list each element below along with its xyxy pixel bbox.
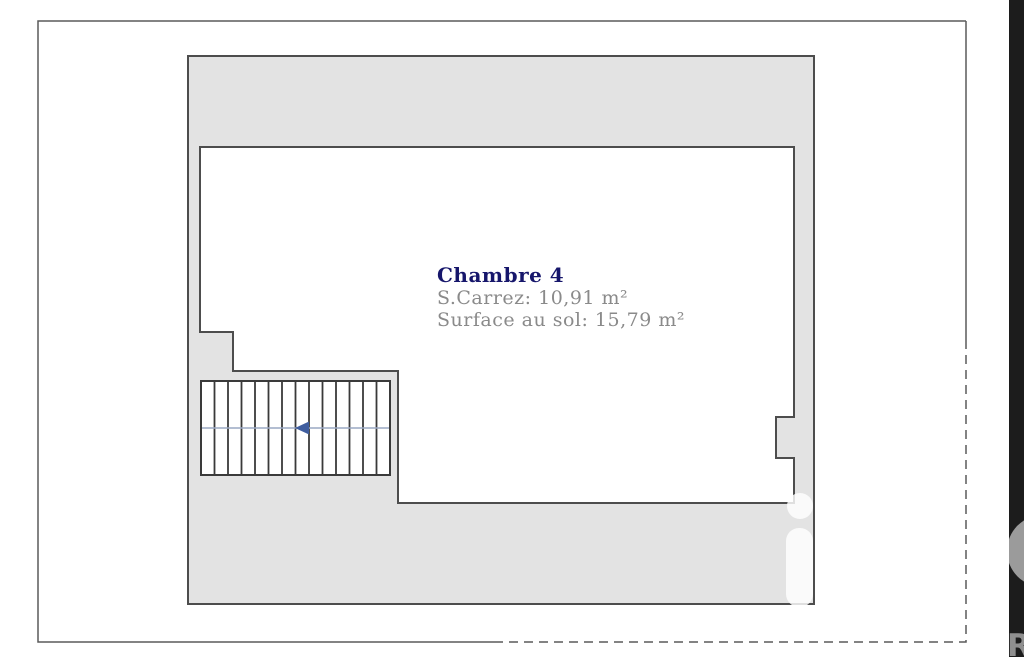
watermark-i-bar — [786, 528, 813, 607]
staircase — [201, 381, 390, 475]
watermark-i-icon — [786, 493, 813, 607]
watermark-i-dot — [787, 493, 813, 519]
watermark-band-letter-r: R — [1007, 628, 1024, 657]
floor-plan-page: R Chambre 4 S.Carrez: 10,91 m² Surface a… — [0, 0, 1024, 657]
watermark-band: R — [1007, 0, 1024, 657]
floor-plan-drawing: R — [0, 0, 1024, 657]
